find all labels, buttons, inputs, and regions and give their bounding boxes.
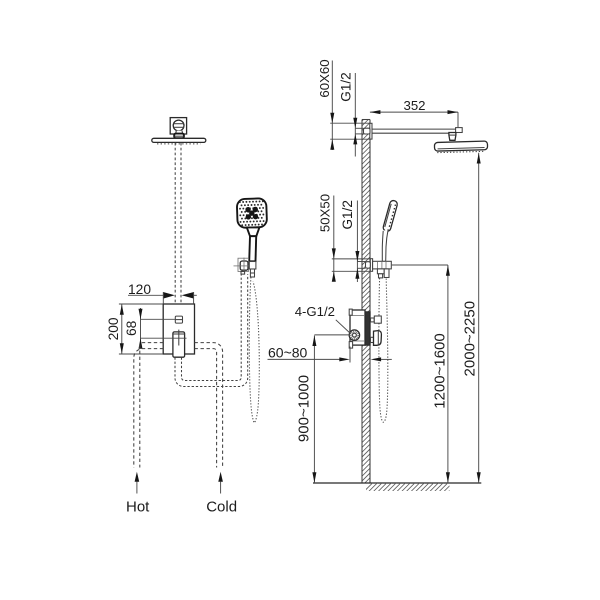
svg-text:G1/2: G1/2 [340, 200, 355, 229]
svg-text:Hot: Hot [126, 498, 150, 515]
svg-text:Cold: Cold [206, 498, 237, 515]
svg-text:352: 352 [403, 98, 425, 113]
svg-text:50X50: 50X50 [318, 194, 333, 232]
svg-text:4-G1/2: 4-G1/2 [295, 304, 335, 319]
svg-text:200: 200 [106, 317, 121, 340]
svg-text:G1/2: G1/2 [338, 72, 353, 101]
svg-text:2000~2250: 2000~2250 [461, 301, 478, 377]
svg-text:60~80: 60~80 [268, 344, 308, 360]
svg-text:60X60: 60X60 [317, 59, 332, 97]
svg-text:120: 120 [128, 282, 151, 297]
svg-text:1200~1600: 1200~1600 [431, 333, 448, 409]
svg-text:900~1000: 900~1000 [295, 375, 312, 442]
svg-text:68: 68 [124, 320, 139, 336]
